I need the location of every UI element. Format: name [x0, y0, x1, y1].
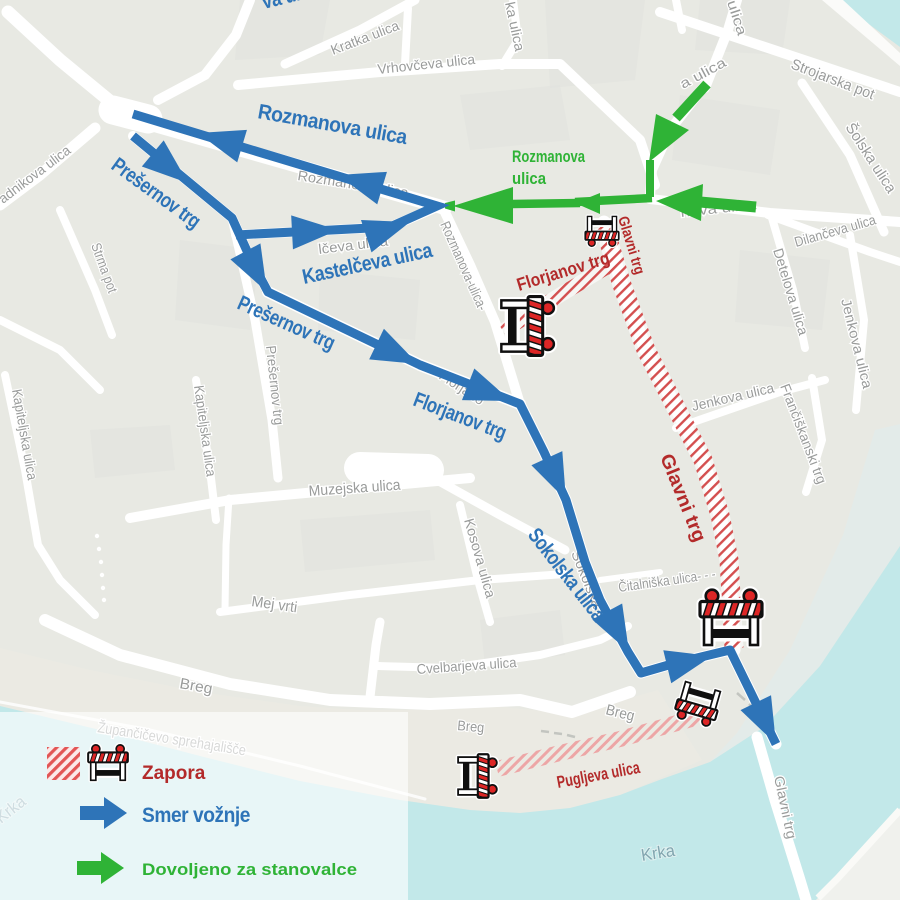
- svg-text:Rozmanova: Rozmanova: [512, 147, 585, 166]
- svg-text:Dovoljeno za stanovalce: Dovoljeno za stanovalce: [142, 860, 357, 879]
- svg-text:ulica: ulica: [512, 169, 546, 188]
- svg-text:Smer vožnje: Smer vožnje: [142, 804, 250, 827]
- svg-text:Breg: Breg: [457, 717, 485, 735]
- svg-text:Zapora: Zapora: [142, 763, 206, 784]
